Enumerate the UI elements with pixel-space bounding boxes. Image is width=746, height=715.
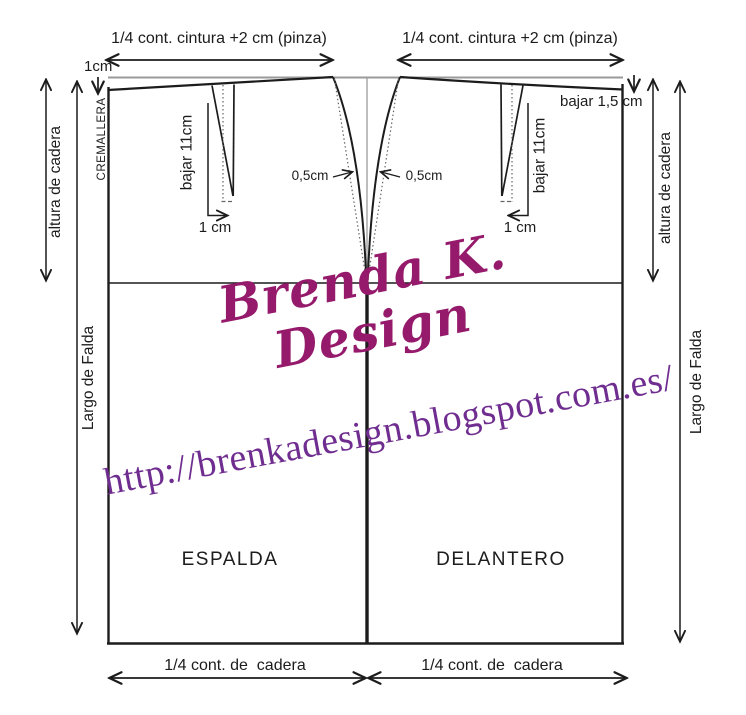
front-hip-measure-label: 1/4 cont. de cadera — [378, 657, 606, 675]
front-seam-curve-label: 0,5cm — [402, 169, 446, 184]
front-waist-measure-label: 1/4 cont. cintura +2 cm (pinza) — [396, 30, 624, 48]
skirt-length-left-label: Largo de Falda — [81, 313, 97, 443]
back-waist-drop-label: 1cm — [84, 59, 124, 76]
back-dart — [212, 85, 235, 202]
back-piece-label: ESPALDA — [150, 550, 310, 571]
back-waist-measure-label: 1/4 cont. cintura +2 cm (pinza) — [105, 30, 333, 48]
front-waist-drop-label: bajar 1,5 cm — [560, 94, 652, 111]
back-dart-depth-label: bajar 11cm — [180, 98, 197, 208]
front-dart-width-label: 1 cm — [495, 220, 545, 237]
hip-height-left-label: altura de cadera — [48, 122, 64, 242]
front-dart — [501, 85, 524, 202]
back-hip-measure-label: 1/4 cont. de cadera — [121, 657, 349, 675]
front-piece-label: DELANTERO — [420, 550, 582, 571]
measure-arrows — [46, 60, 680, 678]
back-dart-width-label: 1 cm — [190, 220, 240, 237]
hip-height-right-label: altura de cadera — [658, 128, 674, 248]
front-dart-depth-label: bajar 11cm — [533, 101, 550, 211]
zipper-label: CREMALLERA — [97, 94, 111, 184]
skirt-pattern-diagram: Brenda K. Design http://brenkadesign.blo… — [0, 0, 746, 715]
skirt-length-right-label: Largo de Falda — [689, 317, 705, 447]
back-seam-curve-label: 0,5cm — [288, 169, 332, 184]
